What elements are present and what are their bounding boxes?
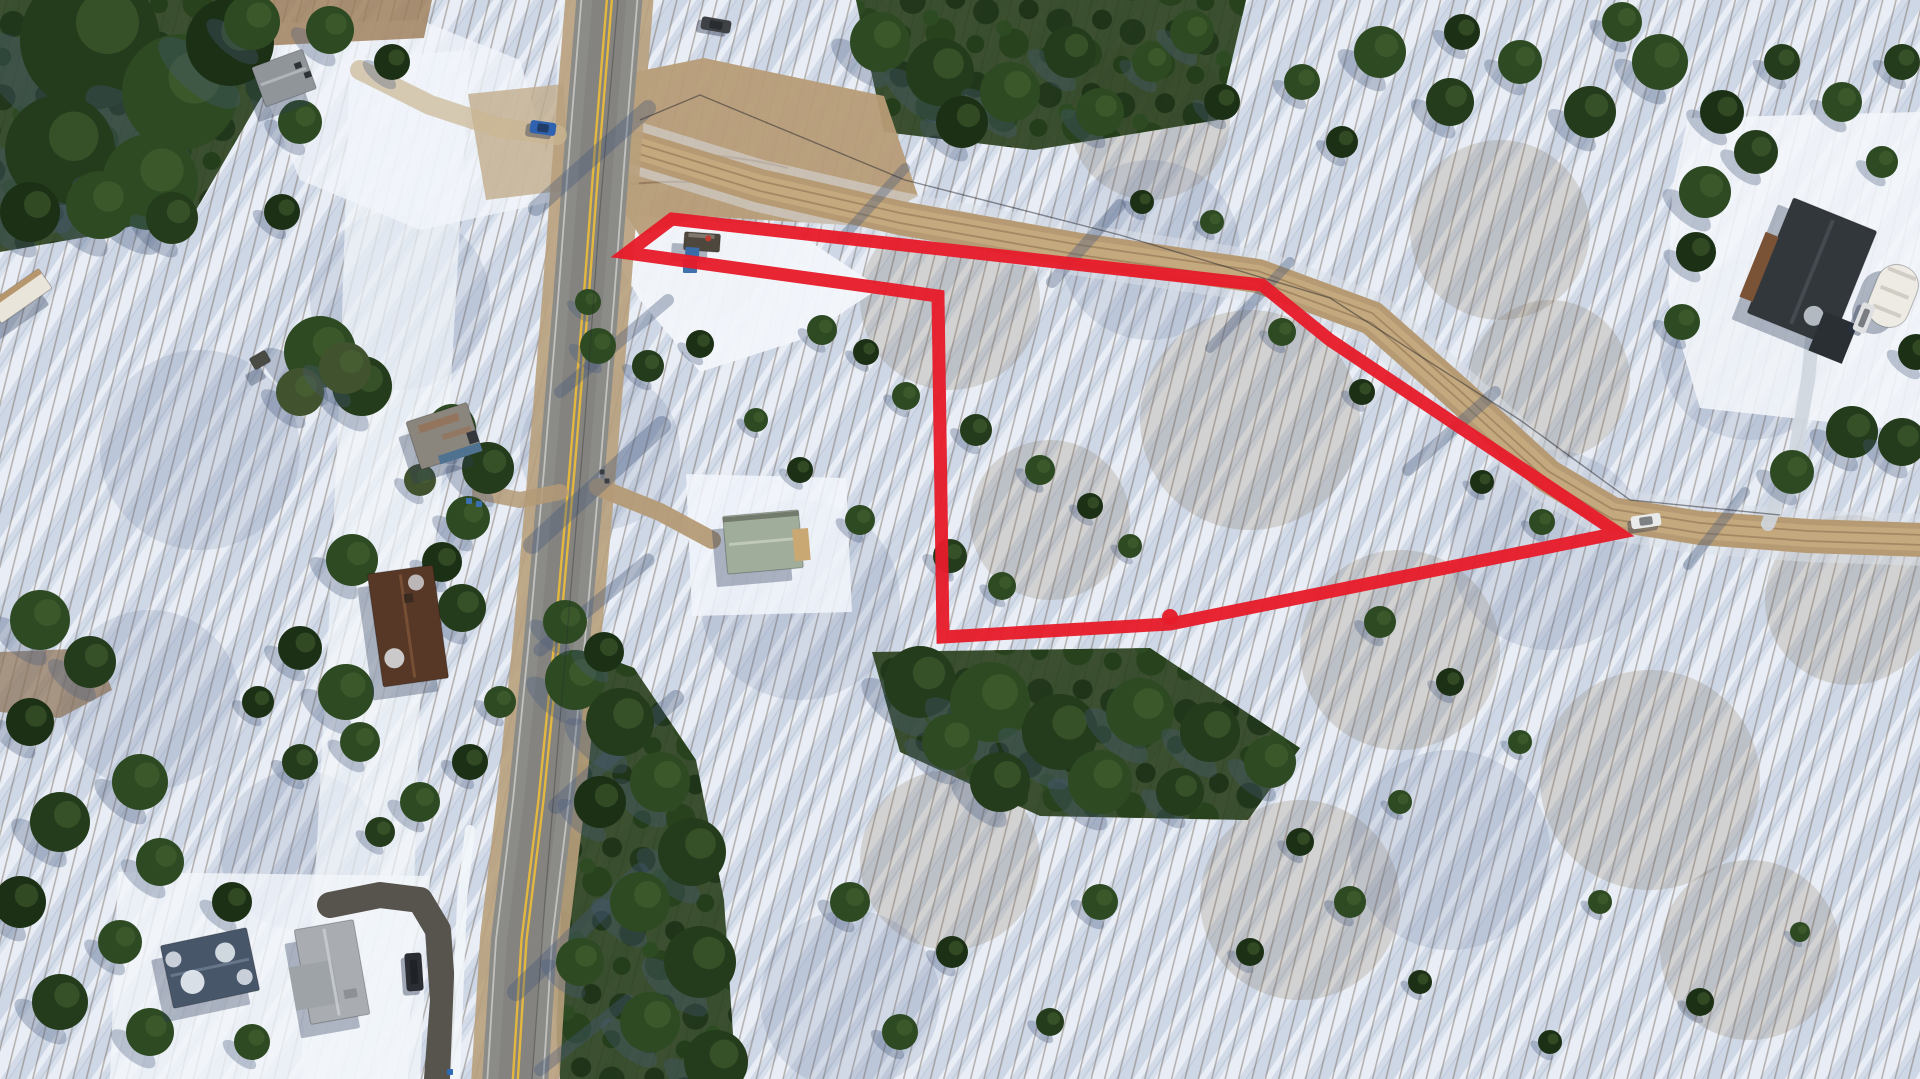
conifer-highlight: [116, 927, 136, 947]
conifer-highlight: [24, 191, 51, 218]
conifer-highlight: [846, 888, 864, 906]
conifer-highlight: [325, 13, 347, 35]
conifer-highlight: [246, 2, 271, 27]
conifer-highlight: [1265, 744, 1288, 767]
conifer-highlight: [1898, 49, 1914, 65]
brown-roof-house-detail: [404, 593, 414, 603]
conifer-highlight: [797, 461, 809, 473]
conifer-highlight: [594, 333, 610, 349]
conifer-highlight: [1798, 925, 1807, 934]
conifer-highlight: [1004, 71, 1031, 98]
conifer-highlight: [54, 982, 79, 1007]
conifer-highlight: [561, 607, 581, 627]
conifer-highlight: [896, 1019, 912, 1035]
conifer-highlight: [595, 784, 618, 807]
conifer-highlight: [585, 293, 597, 305]
conifer-highlight: [134, 762, 159, 787]
conifer-highlight: [278, 199, 294, 215]
mailbox: [605, 479, 610, 484]
conifer-highlight: [438, 548, 456, 566]
conifer-highlight: [483, 450, 506, 473]
conifer-highlight: [1087, 497, 1099, 509]
conifer-highlight: [1585, 94, 1608, 117]
conifer-highlight: [1718, 97, 1738, 117]
conifer-highlight: [377, 822, 391, 836]
conifer-highlight: [1094, 760, 1123, 789]
blue-pickup-truck-glass: [537, 123, 549, 133]
conifer-highlight: [1052, 705, 1086, 739]
conifer-highlight: [140, 148, 183, 191]
conifer-highlight: [296, 107, 316, 127]
conifer-highlight: [697, 334, 710, 347]
conifer-highlight: [1347, 891, 1361, 905]
blue-bin: [447, 1069, 453, 1075]
conifer-highlight: [1279, 322, 1292, 335]
conifer-highlight: [1548, 1034, 1559, 1045]
conifer-highlight: [167, 200, 190, 223]
conifer-highlight: [1654, 42, 1679, 67]
property-boundary-marker-dot: [1162, 609, 1178, 625]
conifer-highlight: [1445, 85, 1467, 107]
conifer-highlight: [1204, 711, 1231, 738]
forest-tone-patch: [1540, 670, 1760, 890]
conifer-highlight: [644, 1001, 671, 1028]
conifer-highlight: [1539, 513, 1551, 525]
conifer-highlight: [913, 657, 945, 689]
conifer-highlight: [600, 638, 618, 656]
conifer-highlight: [93, 181, 124, 212]
conifer-highlight: [634, 881, 661, 908]
aerial-photo-of-snowy-wooded-lot: [0, 0, 1920, 1079]
conifer-highlight: [1618, 8, 1636, 26]
conifer-highlight: [1218, 89, 1234, 105]
conifer-highlight: [416, 788, 434, 806]
forest-tone-patch: [1350, 750, 1550, 950]
conifer-highlight: [34, 599, 61, 626]
conifer-highlight: [819, 320, 833, 334]
conifer-highlight: [228, 888, 246, 906]
conifer-highlight: [1140, 194, 1151, 205]
conifer-highlight: [645, 355, 659, 369]
conifer-highlight: [685, 828, 716, 859]
conifer-highlight: [994, 761, 1021, 788]
aerial-photo-viewport: [0, 0, 1920, 1079]
conifer-highlight: [1148, 48, 1166, 66]
conifer-highlight: [1359, 383, 1371, 395]
conifer-highlight: [49, 112, 99, 162]
conifer-highlight: [1128, 538, 1139, 549]
conifer-highlight: [255, 691, 269, 705]
dark-car-south-driveway: [400, 952, 424, 995]
conifer-highlight: [1377, 611, 1391, 625]
mailbox: [600, 470, 605, 475]
conifer-highlight: [497, 691, 511, 705]
conifer-highlight: [1247, 942, 1260, 955]
conifer-highlight: [863, 343, 875, 355]
conifer-highlight: [1133, 688, 1164, 719]
conifer-highlight: [693, 937, 725, 969]
conifer-highlight: [949, 941, 963, 955]
conifer-highlight: [1297, 832, 1310, 845]
conifer-highlight: [1697, 992, 1710, 1005]
conifer-highlight: [1897, 425, 1919, 447]
conifer-highlight: [85, 644, 108, 667]
conifer-highlight: [973, 419, 987, 433]
conifer-highlight: [388, 49, 404, 65]
conifer-highlight: [340, 350, 363, 373]
conifer-highlight: [933, 48, 964, 79]
conifer-highlight: [25, 705, 47, 727]
conifer-highlight: [248, 1029, 264, 1045]
conifer-highlight: [466, 749, 482, 765]
conifer-highlight: [857, 510, 871, 524]
conifer-highlight: [944, 722, 969, 747]
conifer-highlight: [1480, 474, 1491, 485]
conifer-highlight: [1458, 19, 1474, 35]
blue-bin: [466, 498, 472, 504]
conifer-highlight: [947, 544, 962, 559]
conifer-highlight: [1788, 457, 1808, 477]
conifer-highlight: [54, 801, 81, 828]
conifer-highlight: [356, 728, 374, 746]
conifer-highlight: [874, 21, 901, 48]
conifer-highlight: [1847, 414, 1870, 437]
conifer-highlight: [1692, 238, 1710, 256]
conifer-highlight: [1339, 131, 1353, 145]
conifer-highlight: [1375, 34, 1398, 57]
conifer-highlight: [1778, 49, 1794, 65]
conifer-highlight: [1598, 894, 1609, 905]
conifer-highlight: [1752, 137, 1772, 157]
conifer-highlight: [1700, 174, 1723, 197]
conifer-highlight: [999, 576, 1012, 589]
conifer-highlight: [754, 412, 765, 423]
conifer-highlight: [1516, 47, 1536, 67]
conifer-highlight: [1095, 95, 1117, 117]
conifer-highlight: [1518, 734, 1529, 745]
green-roof-house-detail: [792, 528, 811, 561]
conifer-highlight: [1838, 88, 1856, 106]
conifer-highlight: [1879, 151, 1893, 165]
forest-tone-patch: [1410, 140, 1590, 320]
conifer-highlight: [575, 945, 597, 967]
conifer-highlight: [903, 386, 916, 399]
conifer-highlight: [1188, 17, 1208, 37]
conifer-highlight: [982, 674, 1018, 710]
conifer-highlight: [1047, 1012, 1060, 1025]
conifer-highlight: [1447, 672, 1460, 685]
conifer-highlight: [1065, 34, 1088, 57]
forest-tone-patch: [100, 350, 300, 550]
conifer-highlight: [1175, 775, 1197, 797]
conifer-highlight: [613, 698, 644, 729]
conifer-highlight: [155, 845, 177, 867]
conifer-highlight: [1678, 309, 1694, 325]
conifer-highlight: [15, 884, 38, 907]
conifer-highlight: [1096, 889, 1112, 905]
blue-bin: [476, 501, 482, 507]
conifer-highlight: [1298, 69, 1314, 85]
conifer-highlight: [296, 633, 316, 653]
conifer-highlight: [957, 104, 980, 127]
conifer-highlight: [654, 761, 681, 788]
conifer-highlight: [710, 1040, 739, 1069]
conifer-highlight: [1210, 214, 1221, 225]
conifer-highlight: [1037, 460, 1051, 474]
conifer-highlight: [1418, 974, 1429, 985]
conifer-highlight: [347, 542, 370, 565]
conifer-highlight: [457, 591, 479, 613]
conifer-highlight: [1398, 794, 1409, 805]
conifer-highlight: [296, 749, 312, 765]
conifer-highlight: [340, 672, 365, 697]
